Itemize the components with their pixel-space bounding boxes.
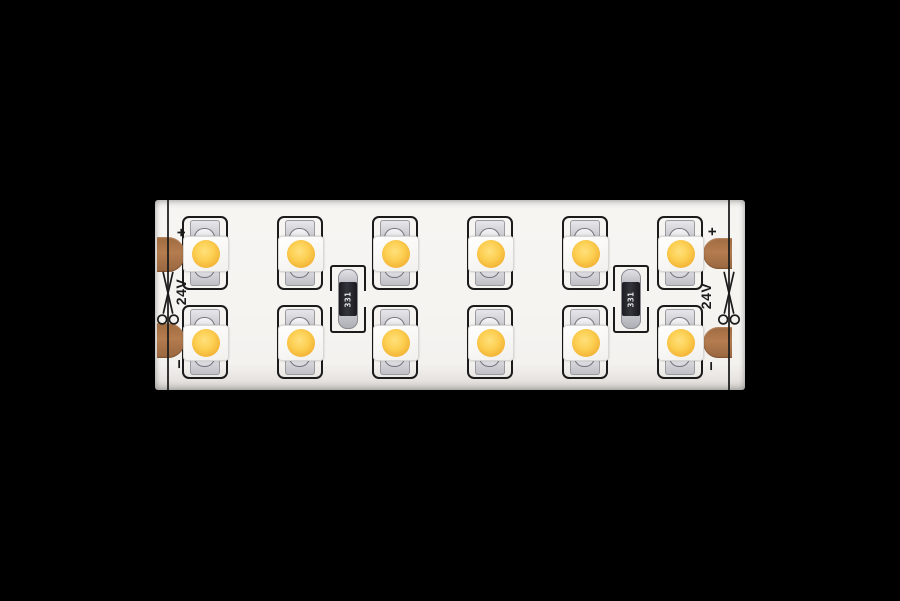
resistor-code-label: 331 (343, 291, 352, 307)
led-package-body (278, 236, 324, 272)
scissors-icon (717, 271, 741, 327)
smd-led (372, 305, 418, 379)
led-package-body (373, 236, 419, 272)
led-phosphor-dot (572, 329, 600, 357)
led-package-body (183, 236, 229, 272)
led-phosphor-dot (287, 240, 315, 268)
led-phosphor-dot (667, 240, 695, 268)
resistor-body: 331 (339, 282, 357, 316)
resistor-code-label: 331 (626, 291, 635, 307)
smd-led (467, 216, 513, 290)
led-package-body (563, 236, 609, 272)
led-phosphor-dot (287, 329, 315, 357)
led-phosphor-dot (667, 329, 695, 357)
copper-pad-left-positive (157, 237, 185, 272)
led-phosphor-dot (477, 329, 505, 357)
led-package-body (468, 325, 514, 361)
led-package-body (563, 325, 609, 361)
scissors-icon (156, 271, 180, 327)
polarity-plus-label-left: + (173, 224, 189, 240)
led-package-body (278, 325, 324, 361)
led-phosphor-dot (572, 240, 600, 268)
led-package-body (658, 236, 704, 272)
led-phosphor-dot (192, 329, 220, 357)
copper-pad-left-negative (157, 323, 185, 358)
smd-led (467, 305, 513, 379)
smd-led (277, 305, 323, 379)
smd-resistor: 331 (330, 265, 366, 333)
smd-led (657, 305, 703, 379)
polarity-plus-label-right: + (704, 223, 720, 239)
led-phosphor-dot (382, 329, 410, 357)
led-package-body (468, 236, 514, 272)
polarity-minus-label-right: − (705, 358, 721, 374)
smd-led (372, 216, 418, 290)
smd-led (562, 216, 608, 290)
led-package-body (658, 325, 704, 361)
led-strip-pcb: + 24V − + 24V − (155, 200, 745, 390)
voltage-label-right: 24V (693, 281, 719, 311)
smd-led (277, 216, 323, 290)
led-phosphor-dot (192, 240, 220, 268)
smd-led (562, 305, 608, 379)
resistor-body: 331 (622, 282, 640, 316)
smd-led (657, 216, 703, 290)
led-package-body (373, 325, 419, 361)
polarity-minus-label-left: − (173, 356, 189, 372)
photo-background: + 24V − + 24V − (0, 0, 900, 601)
led-phosphor-dot (382, 240, 410, 268)
smd-resistor: 331 (613, 265, 649, 333)
led-phosphor-dot (477, 240, 505, 268)
led-package-body (183, 325, 229, 361)
